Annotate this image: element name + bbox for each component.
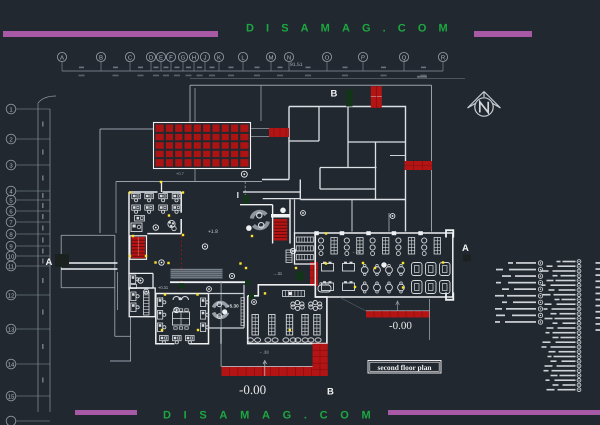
svg-text:←.00: ←.00	[352, 250, 361, 254]
svg-text:second floor plan: second floor plan	[377, 363, 431, 372]
svg-text:A: A	[46, 257, 53, 268]
svg-text:B: B	[327, 387, 334, 398]
svg-text:G: G	[181, 54, 186, 61]
svg-text:E: E	[159, 54, 163, 61]
svg-text:F: F	[169, 54, 173, 61]
svg-text:J: J	[204, 54, 207, 61]
svg-text:DISAMAG.COM: DISAMAG.COM	[246, 23, 460, 35]
svg-text:-0.00: -0.00	[389, 320, 412, 332]
svg-text:A: A	[60, 54, 64, 61]
svg-text:91.51: 91.51	[290, 62, 303, 68]
svg-text:10: 10	[8, 253, 15, 260]
svg-text:D: D	[149, 54, 154, 61]
svg-text:-0.00: -0.00	[239, 382, 266, 397]
svg-text:←.33: ←.33	[259, 350, 269, 355]
svg-text:+1.8: +1.8	[208, 229, 218, 235]
svg-text:R: R	[441, 54, 446, 61]
svg-text:DISAMAG.COM: DISAMAG.COM	[163, 410, 383, 422]
svg-text:A: A	[462, 243, 469, 254]
svg-text:B: B	[99, 54, 103, 61]
svg-text:H: H	[192, 54, 196, 61]
svg-text:+5.30: +5.30	[227, 303, 239, 308]
svg-text:N: N	[287, 54, 291, 61]
svg-text:B: B	[331, 89, 338, 100]
svg-text:M: M	[269, 54, 274, 61]
svg-text:+0.31: +0.31	[158, 285, 169, 290]
svg-text:C: C	[128, 54, 133, 61]
svg-text:13: 13	[8, 326, 15, 333]
svg-text:14: 14	[8, 361, 15, 368]
svg-text:11: 11	[8, 263, 15, 270]
svg-text:K: K	[217, 54, 221, 61]
svg-text:→.31: →.31	[273, 271, 283, 276]
svg-text:15: 15	[8, 393, 15, 400]
svg-text:P: P	[361, 54, 365, 61]
svg-text:O: O	[325, 54, 330, 61]
svg-text:12: 12	[8, 292, 15, 299]
svg-text:+1.5: +1.5	[157, 297, 164, 301]
svg-text:+0.7: +0.7	[176, 171, 185, 176]
svg-text:Q: Q	[402, 54, 407, 61]
